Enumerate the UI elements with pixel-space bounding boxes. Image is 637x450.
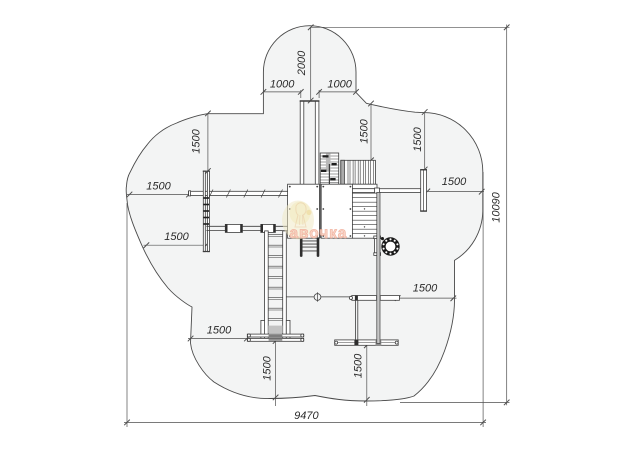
svg-text:1500: 1500 — [191, 128, 203, 153]
svg-text:1500: 1500 — [413, 282, 438, 294]
svg-text:1500: 1500 — [207, 325, 232, 337]
svg-text:1500: 1500 — [353, 353, 365, 378]
svg-text:1500: 1500 — [359, 118, 371, 143]
svg-text:1500: 1500 — [164, 231, 189, 243]
svg-text:1000: 1000 — [270, 79, 295, 91]
svg-text:1000: 1000 — [327, 79, 352, 91]
svg-text:1500: 1500 — [412, 126, 424, 151]
svg-text:10090: 10090 — [491, 191, 503, 222]
svg-text:2000: 2000 — [296, 50, 308, 76]
svg-text:1500: 1500 — [261, 355, 273, 380]
svg-text:авочка: авочка — [290, 225, 348, 242]
svg-text:1500: 1500 — [442, 176, 467, 188]
svg-text:1500: 1500 — [146, 181, 171, 193]
svg-text:9470: 9470 — [294, 410, 319, 422]
